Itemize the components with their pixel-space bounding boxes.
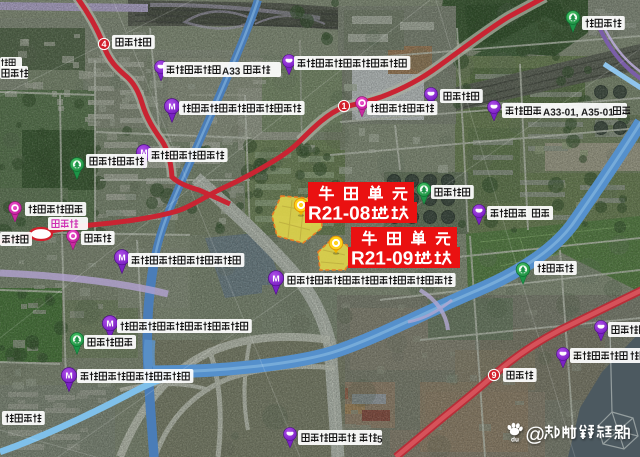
svg-text:A33-01, A35-01: A33-01, A35-01 bbox=[543, 108, 614, 119]
svg-text:9: 9 bbox=[491, 370, 496, 380]
svg-text:R21-09: R21-09 bbox=[351, 249, 413, 270]
svg-text:5: 5 bbox=[377, 435, 383, 446]
svg-text:R21-08: R21-08 bbox=[308, 204, 370, 225]
svg-text:A33: A33 bbox=[222, 67, 241, 78]
svg-text:du: du bbox=[511, 437, 519, 444]
svg-text:1: 1 bbox=[341, 101, 346, 111]
svg-text:4: 4 bbox=[101, 39, 106, 49]
svg-text:@: @ bbox=[525, 424, 545, 446]
